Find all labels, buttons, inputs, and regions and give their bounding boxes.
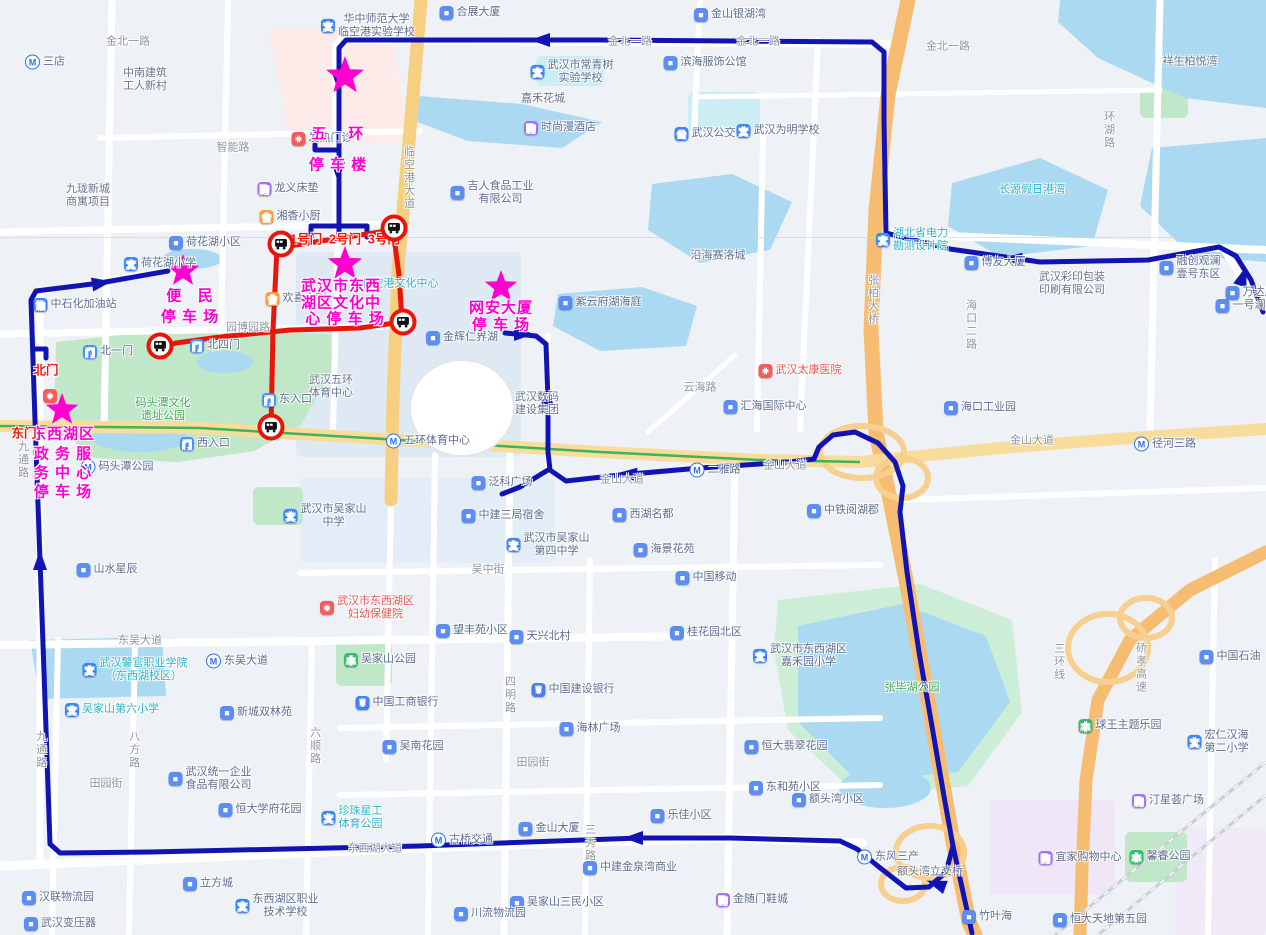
poi-marker[interactable]: 食湘香小厨 (260, 210, 321, 224)
poi-marker[interactable]: ▪川流物流园 (454, 907, 526, 921)
poi-text: 中铁阅湖郡 (824, 504, 879, 517)
poi-marker[interactable]: +武汉太康医院 (759, 364, 842, 378)
poi-text: 三秀路 (582, 824, 595, 863)
poi-text: 汇海国际中心 (741, 400, 807, 413)
poi-marker[interactable]: ▪乐佳小区 (651, 809, 712, 823)
poi-text: 九通路 (15, 441, 28, 480)
poi-text: 临空港大道 (401, 146, 414, 211)
parking-label-bianmin: 便 民 (166, 285, 214, 306)
poi-marker[interactable]: 额头湾立交桥 (897, 865, 963, 878)
poi-text: 天兴北村 (527, 630, 571, 643)
poi-text: 张柏大桥 (865, 274, 878, 326)
poi-text: 码头潭文化遗址公园 (136, 397, 191, 423)
poi-marker[interactable]: 文珍珠星工体育公园 (322, 805, 383, 831)
building-icon: ▪ (807, 504, 821, 518)
poi-text: 万达广场 (1243, 286, 1266, 299)
poi-text: 一号澜庭 (1233, 299, 1266, 312)
bus-stop-icon (268, 231, 295, 258)
building-icon: ▪ (77, 563, 91, 577)
poi-marker[interactable]: 木球王主题乐园 (1079, 719, 1162, 733)
poi-text: 华中师范大学临空港实验学校 (338, 13, 415, 39)
poi-marker[interactable]: ▪傅友大厦 (965, 256, 1026, 270)
poi-marker[interactable]: 购时尚漫酒店 (524, 121, 596, 135)
poi-text: 龙义床垫 (275, 182, 319, 195)
school-icon: 文 (1188, 735, 1202, 749)
poi-road-label: 智能路 (217, 141, 250, 154)
poi-marker[interactable]: ▪紫云府湖海庭 (559, 296, 642, 310)
building-icon: ▪ (1053, 913, 1067, 927)
parking-label-zhengwu: 东西湖区 (31, 423, 95, 444)
poi-marker[interactable]: ▪滨海服饰公馆 (664, 56, 747, 70)
poi-text: 武汉市吴家山第四中学 (524, 532, 590, 558)
poi-road-label: 园博园路 (226, 321, 270, 334)
shopping-icon: 购 (1132, 794, 1146, 808)
poi-marker[interactable]: ▪汇海国际中心 (724, 400, 807, 414)
poi-text: 东西湖大道 (348, 842, 403, 855)
poi-text: 九通路 (33, 731, 46, 770)
school-icon: 文 (236, 899, 250, 913)
poi-road-label: 云海路 (684, 381, 717, 394)
poi-marker[interactable]: 武汉五环体育中心 (309, 374, 353, 400)
poi-text: 恒大翡翠花园 (762, 740, 828, 753)
poi-text: 恒大学府花园 (236, 803, 302, 816)
building-icon: ▪ (1226, 286, 1240, 300)
poi-text: 海景花苑 (651, 543, 695, 556)
poi-text: 球王主题乐园 (1096, 719, 1162, 732)
school-icon: 文 (753, 649, 767, 663)
poi-text: 湖北省电力勘测设计院 (893, 227, 948, 253)
poi-text: 环湖路 (1101, 111, 1114, 150)
poi-text: 汀星荟广场 (1149, 794, 1204, 807)
building-icon: ▪ (436, 624, 450, 638)
poi-marker[interactable]: 文吴家山第六小学 (65, 703, 159, 717)
poi-marker[interactable]: M古桥交通 (431, 833, 493, 848)
poi-marker[interactable]: ▪汉联物流园 (22, 891, 94, 905)
poi-text: 九珑新城商寓项目 (66, 183, 110, 209)
building-icon: ▪ (962, 910, 976, 924)
building-icon: ▪ (451, 186, 465, 200)
metro-icon: M (386, 434, 401, 449)
poi-marker[interactable]: 武汉数码建设集团 (515, 391, 559, 417)
poi-text: 园博园路 (226, 321, 270, 334)
poi-marker[interactable]: 门东入口 (262, 393, 312, 407)
parking-label-wuhuan: 五 环 (312, 123, 365, 144)
poi-text: 珍珠星工体育公园 (339, 805, 383, 831)
school-icon: 文 (531, 65, 545, 79)
map-label-layer: M三店金北一路中南建筑工人新村文华中师范大学临空港实验学校▪合展大厦▪金山银湖湾… (0, 0, 1266, 935)
poi-marker[interactable]: 嘉禾花城 (521, 92, 565, 105)
poi-road-label: 吴中街 (472, 563, 505, 576)
poi-text: 紫云府湖海庭 (576, 296, 642, 309)
poi-marker[interactable]: 文武汉市常青树实验学校 (531, 59, 614, 85)
poi-marker[interactable]: +武汉市东西湖区妇幼保健院 (320, 595, 414, 621)
poi-text: 云海路 (684, 381, 717, 394)
poi-marker[interactable]: ▪海口工业园 (944, 401, 1016, 415)
poi-text: 东入口 (279, 393, 312, 406)
poi-text: 吉人食品工业有限公司 (468, 180, 534, 206)
poi-text: 东吴大道 (118, 634, 162, 647)
building-icon: ▪ (454, 907, 468, 921)
poi-marker[interactable]: 购汀星荟广场 (1132, 794, 1204, 808)
building-icon: ▪ (472, 476, 486, 490)
poi-marker[interactable]: M三店 (25, 55, 65, 70)
poi-road-label: 六顺路 (307, 727, 320, 766)
bus-stop-icon (258, 414, 285, 441)
poi-road-label: 金北一路 (736, 35, 780, 48)
poi-text: 北一门 (100, 345, 133, 358)
park-icon: 木 (344, 653, 358, 667)
building-icon: ▪ (583, 861, 597, 875)
poi-text: 东吴大道 (224, 654, 268, 667)
building-icon: ▪ (670, 626, 684, 640)
poi-marker[interactable]: ▪桂花园北区 (670, 626, 742, 640)
metro-icon: M (431, 833, 446, 848)
shopping-icon: 购 (716, 893, 730, 907)
poi-text: 金山大道 (763, 459, 807, 472)
gas-station-icon: 油 (34, 298, 48, 312)
bus-stop-icon (147, 333, 174, 360)
poi-text: 海口工业园 (961, 401, 1016, 414)
poi-marker[interactable]: 长源假日港湾 (999, 183, 1065, 196)
poi-marker[interactable]: 文武汉警官职业学院（东西湖校区） (83, 657, 188, 683)
poi-marker[interactable]: ▪荷花湖小区 (169, 236, 241, 250)
poi-marker[interactable]: ▪武汉统一企业食品有限公司 (169, 766, 252, 792)
school-icon: 文 (284, 509, 298, 523)
gate-icon: 门 (262, 393, 276, 407)
poi-marker[interactable]: ▪望丰苑小区 (436, 624, 508, 638)
parking-label-zhengwu: 政 务 服 (34, 443, 92, 464)
poi-marker[interactable]: ▪中建金泉湾商业 (583, 861, 677, 875)
gate-icon: 门 (180, 437, 194, 451)
poi-marker[interactable]: ▪吉人食品工业有限公司 (451, 180, 534, 206)
school-icon: 文 (507, 538, 521, 552)
poi-text: 武汉市东西湖区妇幼保健院 (337, 595, 414, 621)
poi-road-label: 海口二路 (963, 299, 976, 351)
poi-marker[interactable]: ▪山水星辰 (77, 563, 138, 577)
poi-text: 金北一路 (106, 35, 150, 48)
building-icon: ▪ (724, 400, 738, 414)
poi-text: 融创观澜壹号东区 (1177, 255, 1221, 281)
poi-text: 田园街 (90, 777, 123, 790)
poi-text: 径河三路 (1152, 437, 1196, 450)
building-icon: ▪ (560, 722, 574, 736)
poi-text: 中国建设银行 (549, 683, 615, 696)
building-icon: ▪ (219, 803, 233, 817)
poi-text: 三店 (43, 55, 65, 68)
poi-marker[interactable]: 文武汉市吴家山中学 (284, 503, 367, 529)
poi-text: 二雅路 (708, 463, 741, 476)
poi-text: 中建三局宿舍 (479, 509, 545, 522)
parking-label-zhengwu: 停 车 场 (34, 481, 92, 502)
poi-marker[interactable]: M东吴大道 (206, 654, 268, 669)
poi-text: 金山大厦 (536, 822, 580, 835)
building-icon: ▪ (965, 256, 979, 270)
poi-marker[interactable]: ¥中国建设银行 (532, 683, 615, 697)
building-icon: ▪ (1200, 650, 1214, 664)
poi-marker[interactable]: M东风三产 (857, 850, 919, 865)
poi-marker[interactable]: ▪新城双林苑 (220, 706, 292, 720)
poi-road-label: 田园街 (90, 777, 123, 790)
poi-text: 码头潭公园 (99, 460, 154, 473)
poi-text: 祥生柏悦湾 (1163, 55, 1218, 68)
poi-text: 金山大道 (600, 473, 644, 486)
poi-marker[interactable]: 码头潭文化遗址公园 (136, 397, 191, 423)
poi-text: 四明路 (502, 676, 515, 715)
poi-marker[interactable]: ▪竹叶海 (962, 910, 1012, 924)
shopping-icon: 购 (1039, 851, 1053, 865)
poi-marker[interactable]: ▪万达广场 (1226, 286, 1266, 300)
poi-road-label: 八方路 (126, 731, 139, 770)
poi-marker[interactable]: M二雅路 (690, 463, 741, 478)
building-icon: ▪ (519, 822, 533, 836)
parking-label-bianmin: 停 车 场 (161, 306, 219, 327)
building-icon: ▪ (651, 809, 665, 823)
poi-text: 武汉警官职业学院（东西湖校区） (100, 657, 188, 683)
poi-road-label: 金山大道 (763, 459, 807, 472)
poi-marker[interactable]: ▪海景花苑 (634, 543, 695, 557)
poi-marker[interactable]: 购龙义床垫 (258, 182, 319, 196)
poi-text: 吴家山三民小区 (527, 896, 604, 909)
poi-text: 竹叶海 (979, 910, 1012, 923)
poi-road-label: 东吴大道 (118, 634, 162, 647)
poi-text: 中国移动 (693, 571, 737, 584)
building-icon: ▪ (183, 877, 197, 891)
poi-marker[interactable]: ▪融创观澜壹号东区 (1160, 255, 1221, 281)
poi-marker[interactable]: 文华中师范大学临空港实验学校 (321, 13, 415, 39)
metro-icon: M (690, 463, 705, 478)
poi-marker[interactable]: 九珑新城商寓项目 (66, 183, 110, 209)
poi-text: 额头湾立交桥 (897, 865, 963, 878)
poi-marker[interactable]: M径河三路 (1134, 437, 1196, 452)
poi-road-label: 九通路 (15, 441, 28, 480)
poi-marker[interactable]: 木吴家山公园 (344, 653, 416, 667)
poi-text: 武汉为明学校 (754, 124, 820, 137)
poi-marker[interactable]: ▪恒大学府花园 (219, 803, 302, 817)
poi-marker[interactable]: + (43, 389, 57, 403)
poi-text: 金北一路 (926, 40, 970, 53)
poi-marker[interactable]: ▪中国移动 (676, 571, 737, 585)
building-icon: ▪ (220, 706, 234, 720)
poi-marker[interactable]: ▪金山大厦 (519, 822, 580, 836)
gate-label: 东门 (11, 423, 36, 442)
poi-text: 智能路 (217, 141, 250, 154)
poi-marker[interactable]: 武汉彩印包装印刷有限公司 (1039, 271, 1105, 297)
poi-road-label: 九通路 (33, 731, 46, 770)
building-icon: ▪ (664, 56, 678, 70)
poi-marker[interactable]: ▪一号澜庭 (1216, 299, 1266, 313)
poi-marker[interactable]: 油中石化加油站 (34, 298, 117, 312)
poi-text: 五环体育中心 (404, 434, 470, 447)
school-icon: 文 (737, 124, 751, 138)
gate-icon: 门 (190, 339, 204, 353)
building-icon: ▪ (694, 8, 708, 22)
poi-marker[interactable]: 文湖北省电力勘测设计院 (876, 227, 948, 253)
poi-marker[interactable]: ▪中建三局宿舍 (462, 509, 545, 523)
poi-marker[interactable]: ▪合展大厦 (440, 6, 501, 20)
poi-text: 海口二路 (963, 299, 976, 351)
building-icon: ▪ (944, 401, 958, 415)
poi-text: 中建金泉湾商业 (600, 861, 677, 874)
poi-marker[interactable]: ▪武汉变压器 (24, 917, 96, 931)
building-icon: ▪ (510, 630, 524, 644)
building-icon: ▪ (383, 740, 397, 754)
poi-text: 武汉公交 (692, 127, 736, 140)
poi-text: 吴家山第六小学 (82, 703, 159, 716)
poi-marker[interactable]: 文武汉为明学校 (737, 124, 820, 138)
poi-text: 汉联物流园 (39, 891, 94, 904)
poi-marker[interactable]: ▪中铁阅湖郡 (807, 504, 879, 518)
poi-text: 合展大厦 (457, 6, 501, 19)
hospital-icon: + (320, 601, 334, 615)
poi-marker[interactable]: 文宏仁汉海第二小学 (1188, 729, 1249, 755)
poi-text: 中国石油 (1217, 650, 1261, 663)
poi-text: 时尚漫酒店 (541, 121, 596, 134)
poi-marker[interactable]: 购金随门鞋城 (716, 893, 788, 907)
metro-icon: M (1134, 437, 1149, 452)
metro-icon: M (857, 850, 872, 865)
poi-text: 武汉统一企业食品有限公司 (186, 766, 252, 792)
poi-marker[interactable]: ▪西湖名都 (613, 508, 674, 522)
poi-marker[interactable]: M五环体育中心 (386, 434, 470, 449)
poi-text: 宜家购物中心 (1056, 851, 1122, 864)
poi-text: 东西湖区职业技术学校 (253, 893, 319, 919)
poi-text: 额头湾小区 (809, 793, 864, 806)
poi-marker[interactable]: 张毕湖公园 (885, 681, 940, 694)
poi-marker[interactable]: 文东西湖区职业技术学校 (236, 893, 319, 919)
building-icon: ▪ (634, 543, 648, 557)
school-icon: 文 (321, 19, 335, 33)
poi-marker[interactable]: 文荷花湖小学 (124, 257, 196, 271)
poi-text: 西入口 (197, 437, 230, 450)
school-icon: 文 (322, 811, 336, 825)
poi-road-label: 金山大道 (1010, 434, 1054, 447)
poi-marker[interactable]: ▪额头湾小区 (792, 793, 864, 807)
poi-marker[interactable]: 公武汉公交 (675, 127, 736, 141)
poi-marker[interactable]: ▪吴南花园 (383, 740, 444, 754)
poi-text: 北四门 (207, 339, 240, 352)
building-icon: ▪ (745, 740, 759, 754)
poi-marker[interactable]: ▪海林广场 (560, 722, 621, 736)
poi-text: 中石化加油站 (51, 298, 117, 311)
hospital-icon: + (759, 364, 773, 378)
shopping-icon: 购 (258, 182, 272, 196)
poi-text: 海林广场 (577, 722, 621, 735)
building-icon: ▪ (1160, 261, 1174, 275)
poi-road-label: 硚孝高速 (1133, 642, 1146, 694)
poi-text: 滨海服饰公馆 (681, 56, 747, 69)
park-icon: 木 (1079, 719, 1093, 733)
school-icon: 文 (83, 663, 97, 677)
poi-marker[interactable]: ¥中国工商银行 (356, 696, 439, 710)
poi-text: 武汉市常青树实验学校 (548, 59, 614, 85)
poi-text: 荷花湖小学 (141, 257, 196, 270)
poi-text: 川流物流园 (471, 907, 526, 920)
poi-text: 荷花湖小区 (186, 236, 241, 249)
poi-marker[interactable]: ▪立方城 (183, 877, 233, 891)
poi-marker[interactable]: ▪恒大天地第五园 (1053, 913, 1147, 927)
poi-text: 吴家山公园 (361, 653, 416, 666)
building-icon: ▪ (169, 236, 183, 250)
poi-marker[interactable]: ▪泛科广场 (472, 476, 533, 490)
poi-text: 长源假日港湾 (999, 183, 1065, 196)
poi-text: 恒大天地第五园 (1070, 913, 1147, 926)
poi-marker[interactable]: 文武汉市吴家山第四中学 (507, 532, 590, 558)
poi-marker[interactable]: 门西入口 (180, 437, 230, 451)
poi-marker[interactable]: ▪天兴北村 (510, 630, 571, 644)
poi-road-label: 金北一路 (926, 40, 970, 53)
poi-text: 张毕湖公园 (885, 681, 940, 694)
poi-text: 东风三产 (875, 850, 919, 863)
poi-text: 武汉彩印包装印刷有限公司 (1039, 271, 1105, 297)
poi-marker[interactable]: ▪中国石油 (1200, 650, 1261, 664)
poi-marker[interactable]: 中南建筑工人新村 (123, 67, 167, 93)
building-icon: ▪ (559, 296, 573, 310)
poi-road-label: 东西湖大道 (348, 842, 403, 855)
poi-text: 中南建筑工人新村 (123, 67, 167, 93)
school-icon: 文 (65, 703, 79, 717)
metro-icon: M (206, 654, 221, 669)
parking-label-zhengwu: 务 中 心 (34, 462, 92, 483)
bus-stop-icon (381, 215, 408, 242)
poi-text: 武汉数码建设集团 (515, 391, 559, 417)
poi-marker[interactable]: 木馨睿公园 (1130, 850, 1191, 864)
map-canvas[interactable]: M三店金北一路中南建筑工人新村文华中师范大学临空港实验学校▪合展大厦▪金山银湖湾… (0, 0, 1266, 935)
park-icon: 木 (1130, 850, 1144, 864)
poi-text: 金山大道 (1010, 434, 1054, 447)
restaurant-icon: 食 (260, 210, 274, 224)
poi-marker[interactable]: ▪恒大翡翠花园 (745, 740, 828, 754)
poi-marker[interactable]: ▪金山银湖湾 (694, 8, 766, 22)
poi-text: 三环线 (1051, 643, 1064, 682)
poi-text: 田园街 (517, 756, 550, 769)
building-icon: ▪ (613, 508, 627, 522)
building-icon: ▪ (426, 331, 440, 345)
gate-icon: 门 (83, 345, 97, 359)
building-icon: ▪ (169, 772, 183, 786)
poi-text: 馨睿公园 (1147, 850, 1191, 863)
poi-text: 山水星辰 (94, 563, 138, 576)
poi-marker[interactable]: 沿海赛洛城 (691, 249, 746, 262)
poi-text: 古桥交通 (449, 833, 493, 846)
poi-text: 吴中街 (472, 563, 505, 576)
poi-text: 武汉市东西湖区嘉禾园小学 (770, 643, 847, 669)
restaurant-icon: 食 (266, 292, 280, 306)
poi-text: 武汉市吴家山中学 (301, 503, 367, 529)
school-icon: 文 (124, 257, 138, 271)
poi-text: 武汉变压器 (41, 917, 96, 930)
poi-text: 新城双林苑 (237, 706, 292, 719)
bank-icon: ¥ (532, 683, 546, 697)
poi-marker[interactable]: 购宜家购物中心 (1039, 851, 1122, 865)
poi-marker[interactable]: 文武汉市东西湖区嘉禾园小学 (753, 643, 847, 669)
poi-road-label: 金北一路 (106, 35, 150, 48)
building-icon: ▪ (749, 781, 763, 795)
building-icon: ▪ (1216, 299, 1230, 313)
bus-station-icon: 公 (675, 127, 689, 141)
poi-road-label: 张柏大桥 (865, 274, 878, 326)
hospital-icon: + (43, 389, 57, 403)
poi-marker[interactable]: 祥生柏悦湾 (1163, 55, 1218, 68)
poi-text: 八方路 (126, 731, 139, 770)
bank-icon: ¥ (356, 696, 370, 710)
building-icon: ▪ (440, 6, 454, 20)
building-icon: ▪ (462, 509, 476, 523)
poi-text: 望丰苑小区 (453, 624, 508, 637)
poi-road-label: 田园街 (517, 756, 550, 769)
poi-marker[interactable]: 门北一门 (83, 345, 133, 359)
poi-road-label: 金山大道 (600, 473, 644, 486)
poi-marker[interactable]: 门北四门 (190, 339, 240, 353)
